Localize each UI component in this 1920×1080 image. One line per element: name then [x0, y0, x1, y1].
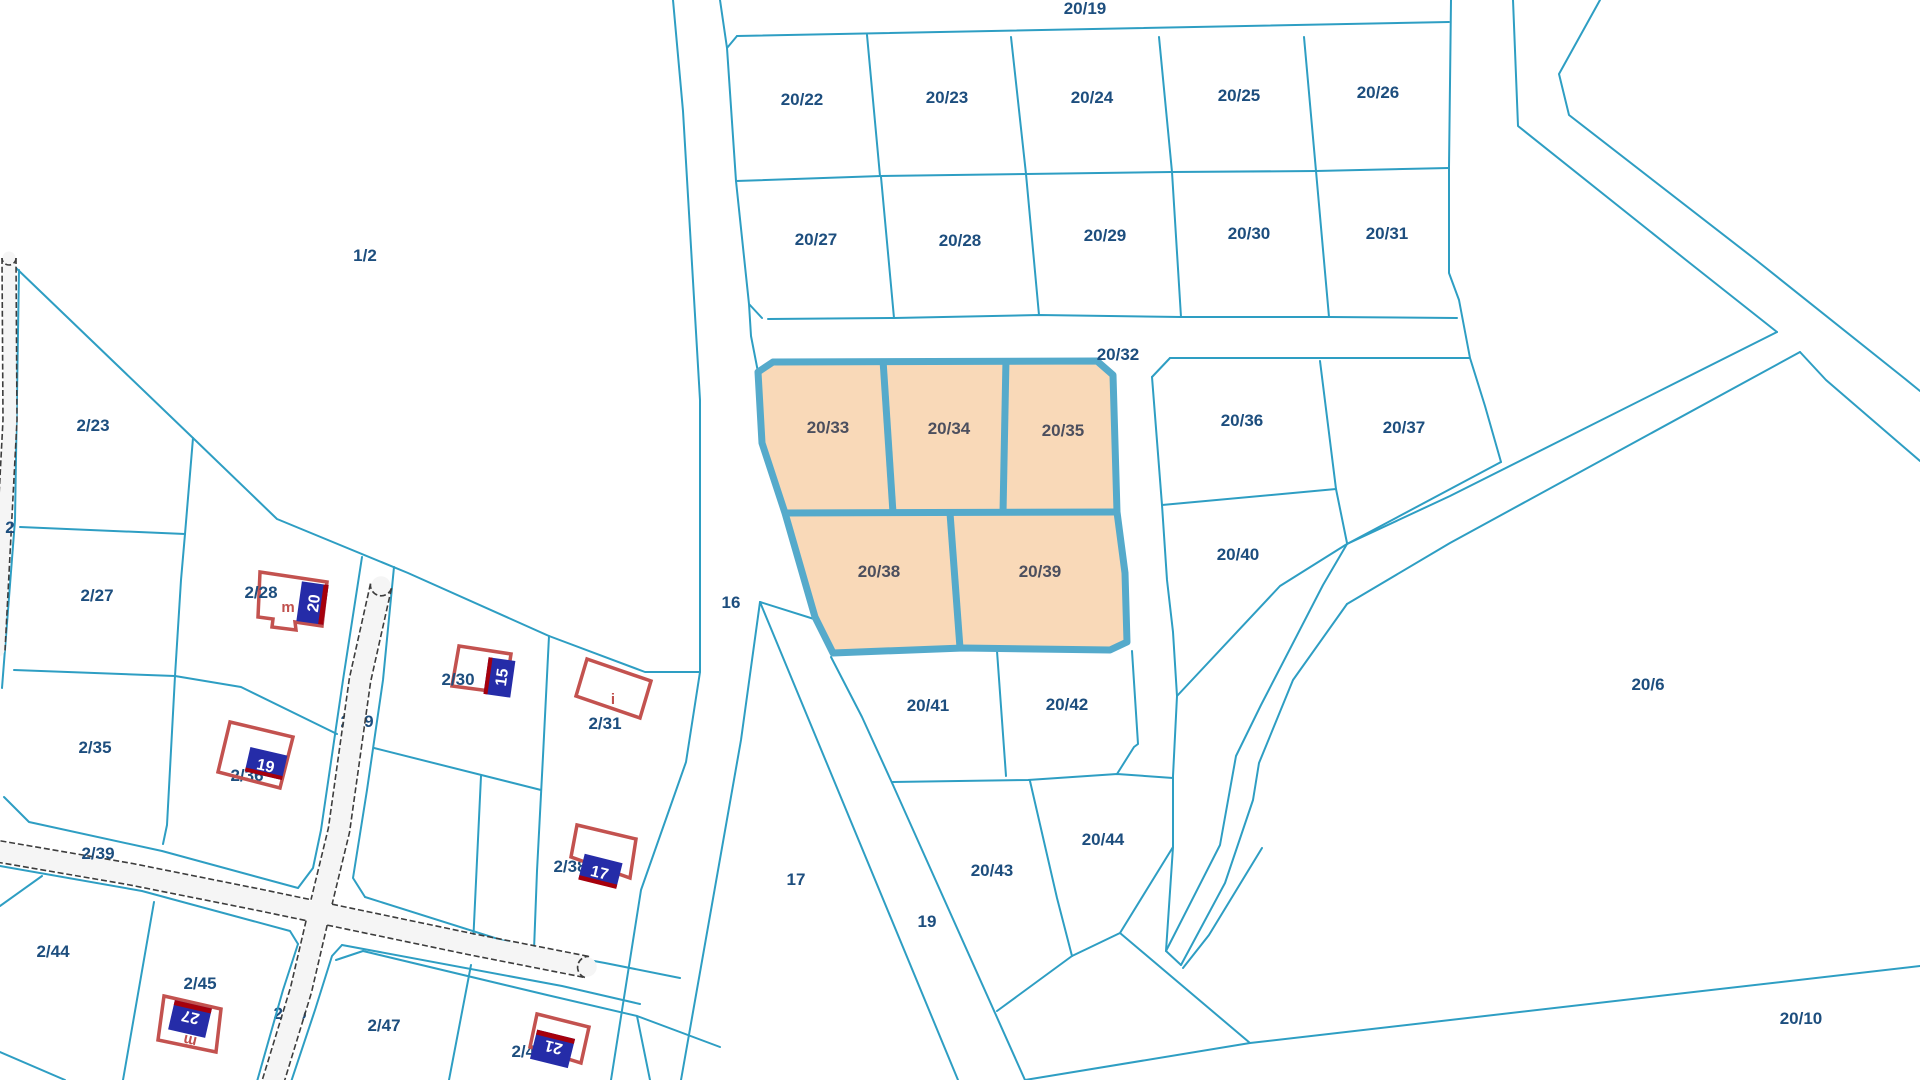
svg-text:20/10: 20/10	[1780, 1009, 1823, 1028]
svg-text:15: 15	[493, 667, 512, 687]
svg-text:2/45: 2/45	[183, 974, 216, 993]
svg-text:20/35: 20/35	[1042, 421, 1085, 440]
svg-text:20/33: 20/33	[807, 418, 850, 437]
svg-text:20/24: 20/24	[1071, 88, 1114, 107]
svg-text:20/31: 20/31	[1366, 224, 1409, 243]
svg-text:16: 16	[722, 593, 741, 612]
svg-text:20/40: 20/40	[1217, 545, 1260, 564]
svg-text:20/42: 20/42	[1046, 695, 1089, 714]
svg-text:20/23: 20/23	[926, 88, 969, 107]
svg-text:19: 19	[918, 912, 937, 931]
svg-text:20/37: 20/37	[1383, 418, 1426, 437]
svg-text:20/6: 20/6	[1631, 675, 1664, 694]
svg-text:20/29: 20/29	[1084, 226, 1127, 245]
svg-text:20/30: 20/30	[1228, 224, 1271, 243]
svg-text:20/44: 20/44	[1082, 830, 1125, 849]
svg-text:2/28: 2/28	[244, 583, 277, 602]
svg-text:20/38: 20/38	[858, 562, 901, 581]
svg-text:20/36: 20/36	[1221, 411, 1264, 430]
svg-text:2/35: 2/35	[78, 738, 111, 757]
svg-text:20/34: 20/34	[928, 419, 971, 438]
svg-text:20/26: 20/26	[1357, 83, 1400, 102]
svg-text:2/44: 2/44	[36, 942, 70, 961]
svg-text:20: 20	[305, 593, 324, 613]
svg-text:20/19: 20/19	[1064, 0, 1107, 18]
svg-text:20/43: 20/43	[971, 861, 1014, 880]
svg-text:17: 17	[787, 870, 806, 889]
svg-text:2: 2	[5, 518, 14, 537]
svg-text:i: i	[611, 691, 615, 708]
svg-text:20/27: 20/27	[795, 230, 838, 249]
svg-text:1/2: 1/2	[353, 246, 377, 265]
svg-text:2/39: 2/39	[81, 844, 114, 863]
svg-text:m: m	[281, 599, 294, 616]
svg-text:2/30: 2/30	[441, 670, 474, 689]
svg-text:20/25: 20/25	[1218, 86, 1261, 105]
svg-text:20/32: 20/32	[1097, 345, 1140, 364]
svg-text:2/31: 2/31	[588, 714, 621, 733]
svg-text:2/47: 2/47	[367, 1016, 400, 1035]
svg-text:2/23: 2/23	[76, 416, 109, 435]
svg-text:20/28: 20/28	[939, 231, 982, 250]
svg-text:20/22: 20/22	[781, 90, 824, 109]
svg-text:2/27: 2/27	[80, 586, 113, 605]
svg-text:20/39: 20/39	[1019, 562, 1062, 581]
svg-text:20/41: 20/41	[907, 696, 950, 715]
